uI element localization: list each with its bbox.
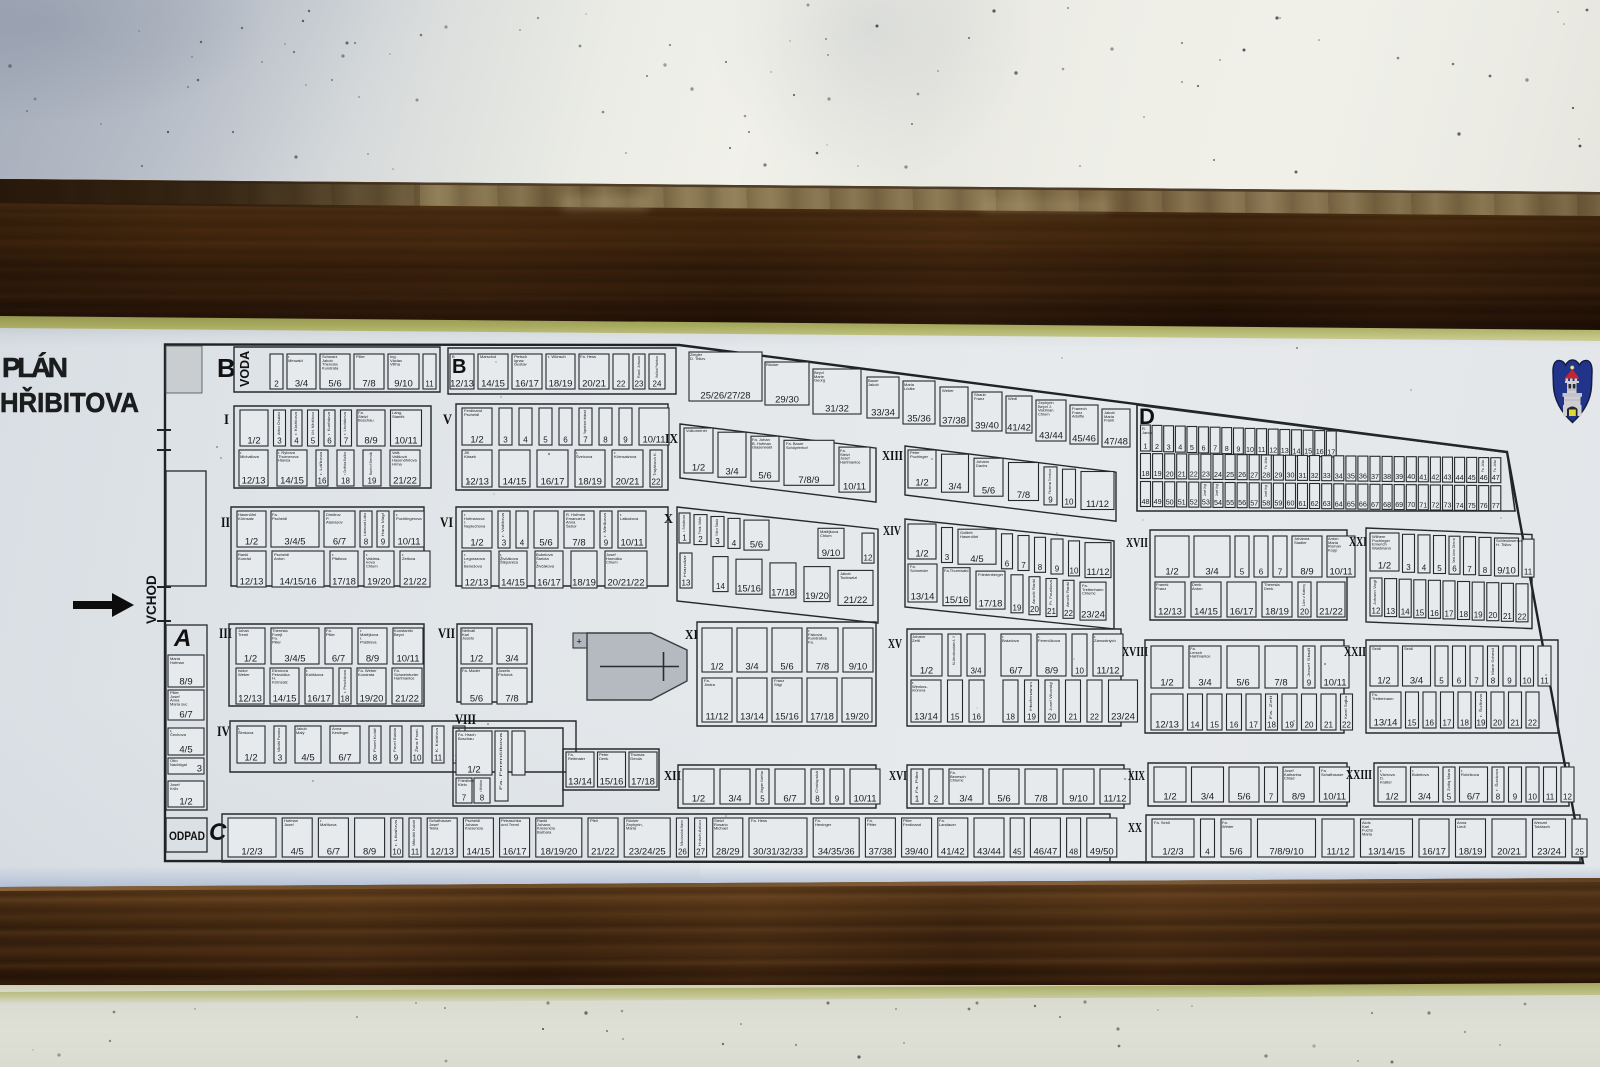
svg-text:11: 11 xyxy=(425,380,434,389)
svg-text:23: 23 xyxy=(1202,470,1210,479)
svg-text:13/14: 13/14 xyxy=(911,592,935,603)
svg-text:9: 9 xyxy=(381,538,386,547)
svg-text:35: 35 xyxy=(1347,472,1355,481)
svg-text:8: 8 xyxy=(1225,444,1229,453)
svg-text:XX: XX xyxy=(1128,821,1142,836)
svg-text:1/2: 1/2 xyxy=(1163,792,1176,803)
svg-text:10/11: 10/11 xyxy=(396,654,419,665)
svg-text:64: 64 xyxy=(1335,499,1343,508)
svg-text:24: 24 xyxy=(653,380,662,389)
svg-text:17: 17 xyxy=(1327,448,1335,457)
svg-text:56: 56 xyxy=(1238,498,1246,507)
svg-text:12/13: 12/13 xyxy=(240,577,264,588)
svg-text:r. Šustova: r. Šustova xyxy=(1494,768,1499,791)
svg-text:7: 7 xyxy=(1021,561,1026,570)
svg-text:21/22: 21/22 xyxy=(393,476,417,487)
svg-text:36: 36 xyxy=(1359,472,1367,481)
svg-text:67: 67 xyxy=(1371,500,1379,509)
svg-text:3/4/5: 3/4/5 xyxy=(284,654,305,665)
svg-text:20/21: 20/21 xyxy=(616,477,640,488)
svg-text:5: 5 xyxy=(311,437,316,446)
svg-text:5/6: 5/6 xyxy=(328,379,341,390)
svg-text:7: 7 xyxy=(344,437,349,446)
svg-text:Mikoláš Paraska: Mikoláš Paraska xyxy=(276,727,281,752)
svg-text:37/38: 37/38 xyxy=(942,416,966,427)
svg-text:21: 21 xyxy=(1324,721,1333,730)
svg-text:JohanTreml: JohanTreml xyxy=(238,628,249,637)
svg-text:10: 10 xyxy=(392,848,401,857)
svg-text:15/16: 15/16 xyxy=(775,712,799,723)
svg-text:1/2: 1/2 xyxy=(1385,792,1398,803)
svg-text:7/8/9/10: 7/8/9/10 xyxy=(1269,847,1303,858)
svg-text:52: 52 xyxy=(1190,498,1198,507)
svg-text:JohannDachs: JohannDachs xyxy=(976,459,989,468)
svg-text:18: 18 xyxy=(341,477,350,486)
svg-text:6: 6 xyxy=(1202,443,1206,452)
svg-text:75: 75 xyxy=(1468,501,1476,510)
svg-text:1: 1 xyxy=(1143,442,1147,451)
svg-text:PLÁN: PLÁN xyxy=(2,352,68,383)
svg-text:3: 3 xyxy=(945,553,950,562)
svg-text:14/15: 14/15 xyxy=(481,379,505,390)
svg-text:6/7: 6/7 xyxy=(179,710,192,721)
svg-text:1/2: 1/2 xyxy=(692,794,705,805)
svg-text:10: 10 xyxy=(1523,677,1532,686)
svg-text:17: 17 xyxy=(1445,609,1454,618)
svg-text:6: 6 xyxy=(1005,559,1010,568)
svg-text:9/10: 9/10 xyxy=(394,379,413,390)
svg-text:13/14/15: 13/14/15 xyxy=(1368,847,1405,858)
svg-text:9/10: 9/10 xyxy=(849,662,868,673)
svg-text:8/9: 8/9 xyxy=(179,677,192,688)
svg-text:11: 11 xyxy=(1540,677,1549,686)
svg-text:14/15: 14/15 xyxy=(501,578,525,589)
svg-text:23/24: 23/24 xyxy=(1537,847,1561,858)
svg-text:20: 20 xyxy=(1305,721,1314,730)
svg-text:70: 70 xyxy=(1407,500,1415,509)
svg-text:5/6: 5/6 xyxy=(982,486,995,497)
svg-text:6/7: 6/7 xyxy=(1009,666,1022,677)
svg-text:5/6: 5/6 xyxy=(780,662,793,673)
svg-text:Fa. Piller: Fa. Piller xyxy=(914,770,919,793)
svg-text:16/17: 16/17 xyxy=(537,578,561,589)
svg-text:XXI: XXI xyxy=(1349,535,1367,550)
svg-text:8/9: 8/9 xyxy=(366,654,379,665)
svg-text:59: 59 xyxy=(1274,499,1282,508)
svg-text:19: 19 xyxy=(1477,719,1486,728)
svg-text:14: 14 xyxy=(716,582,725,591)
svg-text:16: 16 xyxy=(1430,609,1439,618)
svg-text:9: 9 xyxy=(1507,677,1512,686)
svg-text:4: 4 xyxy=(1422,563,1427,572)
svg-text:10/11: 10/11 xyxy=(1323,792,1346,803)
svg-text:63: 63 xyxy=(1323,499,1331,508)
svg-text:1/2: 1/2 xyxy=(244,654,257,665)
svg-text:15/16: 15/16 xyxy=(737,584,761,595)
svg-text:XVI: XVI xyxy=(889,769,907,784)
svg-text:23/24: 23/24 xyxy=(1081,610,1105,621)
svg-text:Josef Vogl: Josef Vogl xyxy=(1214,484,1219,496)
svg-text:9: 9 xyxy=(394,754,399,763)
svg-text:20: 20 xyxy=(1030,605,1039,614)
svg-text:12/13: 12/13 xyxy=(430,847,454,858)
svg-text:Josef Stadl: Josef Stadl xyxy=(1306,648,1311,677)
svg-text:12: 12 xyxy=(1372,607,1381,616)
svg-text:Fa. Hess: Fa. Hess xyxy=(580,354,596,359)
svg-text:16/17: 16/17 xyxy=(307,694,331,705)
svg-text:48: 48 xyxy=(1069,848,1078,857)
svg-text:71: 71 xyxy=(1419,500,1427,509)
svg-text:22: 22 xyxy=(1342,721,1351,730)
svg-text:16: 16 xyxy=(318,477,327,486)
svg-text:11: 11 xyxy=(1524,568,1533,577)
svg-text:4/5: 4/5 xyxy=(179,745,192,756)
svg-text:20/21/22: 20/21/22 xyxy=(608,578,645,589)
svg-text:14: 14 xyxy=(1293,446,1301,455)
svg-text:58: 58 xyxy=(1262,499,1270,508)
svg-text:Lubasová Lidka: Lubasová Lidka xyxy=(362,512,367,536)
svg-text:5/6: 5/6 xyxy=(1237,792,1250,803)
svg-text:27: 27 xyxy=(696,848,705,857)
svg-text:1/2: 1/2 xyxy=(470,654,483,665)
svg-text:3/4: 3/4 xyxy=(1198,678,1211,689)
svg-text:21: 21 xyxy=(1503,612,1512,621)
svg-text:17/18: 17/18 xyxy=(771,587,795,598)
svg-text:6: 6 xyxy=(327,437,332,446)
svg-text:24: 24 xyxy=(1214,470,1222,479)
svg-text:XVII: XVII xyxy=(1126,536,1148,551)
svg-text:38: 38 xyxy=(1383,472,1391,481)
svg-text:16/17: 16/17 xyxy=(515,379,539,390)
svg-text:25: 25 xyxy=(1226,470,1234,479)
svg-text:10: 10 xyxy=(1528,793,1537,802)
svg-text:9: 9 xyxy=(604,539,609,548)
svg-text:B: B xyxy=(452,356,466,378)
svg-text:11/12: 11/12 xyxy=(1326,847,1349,858)
svg-text:Fr. Pouskova: Fr. Pouskova xyxy=(1048,579,1053,605)
svg-text:Fa. Seidl: Fa. Seidl xyxy=(1154,820,1170,825)
svg-text:6: 6 xyxy=(1259,568,1264,577)
svg-text:A: A xyxy=(173,625,191,652)
svg-text:39: 39 xyxy=(1395,472,1403,481)
svg-text:17/18: 17/18 xyxy=(810,712,834,723)
svg-text:Lům z Katriny: Lům z Katriny xyxy=(1301,584,1306,606)
svg-text:9: 9 xyxy=(1048,495,1053,504)
svg-text:3: 3 xyxy=(715,537,720,546)
svg-text:10/11: 10/11 xyxy=(642,435,665,446)
svg-text:18: 18 xyxy=(1459,610,1468,619)
svg-text:7/8: 7/8 xyxy=(505,694,518,705)
svg-text:11: 11 xyxy=(411,848,420,857)
svg-text:5: 5 xyxy=(1439,677,1444,686)
svg-text:11/12: 11/12 xyxy=(1086,567,1109,578)
svg-text:7: 7 xyxy=(462,794,467,803)
svg-text:Žima Frant.: Žima Frant. xyxy=(414,728,419,752)
svg-text:8/9: 8/9 xyxy=(1292,792,1305,803)
svg-text:8/9: 8/9 xyxy=(363,847,376,858)
svg-text:30: 30 xyxy=(1287,471,1295,480)
svg-text:19: 19 xyxy=(1027,713,1036,722)
svg-text:7: 7 xyxy=(583,436,588,445)
svg-text:33: 33 xyxy=(1323,471,1331,480)
svg-text:46/47: 46/47 xyxy=(1034,847,1058,858)
svg-text:Weber: Weber xyxy=(942,388,954,393)
svg-text:16/17: 16/17 xyxy=(503,847,527,858)
svg-text:11/12: 11/12 xyxy=(1103,794,1126,805)
svg-text:Chalupská: Chalupská xyxy=(814,770,819,793)
svg-text:1: 1 xyxy=(915,795,920,804)
svg-text:18: 18 xyxy=(1142,469,1150,478)
svg-text:XIV: XIV xyxy=(883,524,901,539)
svg-text:14/15: 14/15 xyxy=(280,476,304,487)
svg-text:37/38: 37/38 xyxy=(869,847,893,858)
svg-text:1/2: 1/2 xyxy=(245,537,258,548)
svg-text:8: 8 xyxy=(1483,566,1488,575)
svg-text:17: 17 xyxy=(1249,721,1258,730)
svg-text:V: V xyxy=(443,412,452,428)
svg-text:19/20: 19/20 xyxy=(360,694,384,705)
svg-text:M.Jahodorazkate A. V: M.Jahodorazkate A. V xyxy=(951,636,956,665)
svg-text:II: II xyxy=(221,515,230,531)
svg-text:XV: XV xyxy=(888,637,902,652)
svg-text:10: 10 xyxy=(413,754,422,763)
svg-text:PeterDenk: PeterDenk xyxy=(599,752,609,761)
svg-text:3/4: 3/4 xyxy=(505,654,518,665)
svg-text:18: 18 xyxy=(341,695,350,704)
svg-text:HasenöhrlKörnsatz: HasenöhrlKörnsatz xyxy=(238,512,256,521)
svg-text:33/34: 33/34 xyxy=(871,408,895,419)
svg-text:46: 46 xyxy=(1480,473,1488,482)
svg-text:22: 22 xyxy=(652,478,661,487)
svg-text:Hrách Anton: Hrách Anton xyxy=(697,820,702,846)
svg-text:10: 10 xyxy=(1065,498,1074,507)
svg-text:1/2: 1/2 xyxy=(1377,676,1390,687)
svg-text:12: 12 xyxy=(1563,793,1572,802)
svg-text:3/4: 3/4 xyxy=(725,467,738,478)
svg-text:7: 7 xyxy=(1269,793,1274,802)
svg-text:BeyvlMarieGeorg: BeyvlMarieGeorg xyxy=(814,370,825,383)
svg-text:r. Wünsch: r. Wünsch xyxy=(548,354,566,359)
svg-text:11: 11 xyxy=(1546,793,1555,802)
svg-text:18/19/20: 18/19/20 xyxy=(540,847,577,858)
svg-text:17: 17 xyxy=(1443,719,1452,728)
svg-text:40: 40 xyxy=(1407,472,1415,481)
svg-text:10/11: 10/11 xyxy=(1329,567,1352,578)
svg-text:Pfeil: Pfeil xyxy=(590,818,598,823)
svg-text:19/20: 19/20 xyxy=(805,591,829,602)
svg-text:13: 13 xyxy=(1386,607,1395,616)
svg-text:Viktor Štaďa: Viktor Štaďa xyxy=(714,518,719,536)
svg-text:15: 15 xyxy=(1210,721,1219,730)
svg-text:3/4: 3/4 xyxy=(970,667,982,676)
svg-text:Hofmann: Hofmann xyxy=(1028,682,1033,711)
svg-text:25: 25 xyxy=(1575,848,1584,857)
svg-text:73: 73 xyxy=(1444,501,1452,510)
svg-text:8/9: 8/9 xyxy=(1300,567,1313,578)
svg-text:48: 48 xyxy=(1142,497,1150,506)
svg-text:35/36: 35/36 xyxy=(907,414,931,425)
svg-text:30/31/32/33: 30/31/32/33 xyxy=(753,847,803,858)
svg-text:XXIII: XXIII xyxy=(1346,768,1372,783)
svg-text:14: 14 xyxy=(1401,608,1410,617)
svg-text:Anton Chudala: Anton Chudala xyxy=(276,411,281,435)
svg-text:r. Melkova: r. Melkova xyxy=(602,512,607,537)
svg-text:42: 42 xyxy=(1431,473,1439,482)
svg-text:Marschol: Marschol xyxy=(480,354,496,359)
svg-text:r. Šuflova: r. Šuflova xyxy=(1478,693,1483,717)
svg-text:15: 15 xyxy=(951,713,960,722)
svg-text:37: 37 xyxy=(1371,472,1379,481)
svg-text:15/16: 15/16 xyxy=(600,777,624,788)
svg-text:19: 19 xyxy=(1154,469,1162,478)
svg-text:VCHOD: VCHOD xyxy=(144,575,159,624)
svg-text:9: 9 xyxy=(1055,565,1060,574)
svg-text:4: 4 xyxy=(732,539,737,548)
svg-text:Wagner Kateřina: Wagner Kateřina xyxy=(759,770,764,793)
svg-text:+: + xyxy=(577,637,582,647)
svg-text:4: 4 xyxy=(1205,848,1210,857)
svg-text:43/44: 43/44 xyxy=(1039,431,1063,442)
svg-text:6/7: 6/7 xyxy=(338,753,351,764)
svg-text:16/17: 16/17 xyxy=(1422,847,1446,858)
svg-text:r. Líkařova: r. Líkařova xyxy=(393,819,398,846)
svg-text:11/12: 11/12 xyxy=(1096,666,1119,677)
svg-text:11/12: 11/12 xyxy=(705,712,728,723)
svg-text:2: 2 xyxy=(1155,442,1159,451)
svg-text:22: 22 xyxy=(1190,470,1198,479)
svg-text:3/4: 3/4 xyxy=(948,482,961,493)
svg-text:5: 5 xyxy=(1447,793,1452,802)
svg-text:7/8/9: 7/8/9 xyxy=(798,475,819,486)
svg-text:1/2: 1/2 xyxy=(467,765,480,776)
svg-text:Vlačilová Prokešova: Vlačilová Prokešova xyxy=(654,356,659,378)
svg-text:Marie Schmid: Marie Schmid xyxy=(1490,648,1495,675)
svg-text:50: 50 xyxy=(1166,497,1174,506)
svg-text:25/26/27/28: 25/26/27/28 xyxy=(700,391,750,402)
svg-text:XI: XI xyxy=(685,628,698,643)
svg-text:5: 5 xyxy=(760,795,765,804)
svg-text:r. Peschkova: r. Peschkova xyxy=(342,669,347,693)
svg-text:53: 53 xyxy=(1202,498,1210,507)
svg-text:74: 74 xyxy=(1456,501,1464,510)
svg-text:6/7: 6/7 xyxy=(327,847,340,858)
svg-text:3/4: 3/4 xyxy=(1201,792,1214,803)
svg-text:19/20: 19/20 xyxy=(845,712,869,723)
svg-text:7: 7 xyxy=(1213,444,1217,453)
svg-text:22: 22 xyxy=(1090,713,1099,722)
svg-text:r. Michallova: r. Michallova xyxy=(478,780,483,792)
svg-text:10/11: 10/11 xyxy=(1323,678,1346,689)
svg-text:Pavel Kolář: Pavel Kolář xyxy=(372,727,377,752)
svg-text:20: 20 xyxy=(1493,719,1502,728)
svg-text:HŘIBITOVA: HŘIBITOVA xyxy=(0,387,139,418)
svg-text:Fa. Jička: Fa. Jička xyxy=(1263,456,1268,469)
svg-text:Fa.Thurnwald: Fa.Thurnwald xyxy=(944,568,968,573)
svg-text:28/29: 28/29 xyxy=(716,847,740,858)
svg-text:3/4: 3/4 xyxy=(1205,567,1218,578)
svg-text:23/24/25: 23/24/25 xyxy=(629,847,666,858)
svg-text:19/20: 19/20 xyxy=(367,577,391,588)
svg-text:18/19: 18/19 xyxy=(549,379,573,390)
svg-text:13/14: 13/14 xyxy=(740,712,764,723)
svg-text:III: III xyxy=(219,626,232,642)
svg-text:15: 15 xyxy=(1415,608,1424,617)
svg-text:Seidl Johan Zikmund: Seidl Johan Zikmund xyxy=(1451,538,1456,563)
svg-text:ODPAD: ODPAD xyxy=(169,829,205,843)
svg-text:3: 3 xyxy=(502,539,507,548)
svg-text:18: 18 xyxy=(1460,719,1469,728)
svg-text:4: 4 xyxy=(523,436,528,445)
svg-text:66: 66 xyxy=(1359,500,1367,509)
svg-text:1/2: 1/2 xyxy=(1378,561,1391,572)
svg-text:SchwarzJakobTheresiaKundrata: SchwarzJakobTheresiaKundrata xyxy=(322,354,339,370)
svg-text:22: 22 xyxy=(1518,612,1527,621)
svg-text:16: 16 xyxy=(1230,721,1239,730)
svg-text:VODA: VODA xyxy=(238,351,252,387)
svg-text:13/14: 13/14 xyxy=(914,712,938,723)
svg-text:12/13: 12/13 xyxy=(1155,720,1179,731)
svg-text:Fa. Zetl: Fa. Zetl xyxy=(1268,696,1273,719)
svg-text:Ranč Johann: Ranč Johann xyxy=(636,356,641,378)
svg-text:61: 61 xyxy=(1299,499,1307,508)
svg-text:1/2: 1/2 xyxy=(915,478,928,489)
svg-text:76: 76 xyxy=(1480,501,1488,510)
svg-text:Frant. Máša: Frant. Máša xyxy=(697,516,702,534)
svg-text:31: 31 xyxy=(1299,471,1307,480)
svg-text:72: 72 xyxy=(1431,501,1439,510)
svg-text:9: 9 xyxy=(835,795,840,804)
svg-text:45: 45 xyxy=(1013,848,1022,857)
svg-text:Filomena Tremlova: Filomena Tremlova xyxy=(1047,468,1052,494)
svg-text:13/14: 13/14 xyxy=(568,777,592,788)
svg-text:IX: IX xyxy=(665,432,678,447)
svg-text:19: 19 xyxy=(1474,611,1483,620)
svg-text:Fa. Ferenčíkova: Fa. Ferenčíkova xyxy=(498,731,503,790)
svg-text:Arnošt Rankl: Arnošt Rankl xyxy=(1065,582,1070,607)
svg-text:Piller: Piller xyxy=(356,354,366,359)
svg-text:20: 20 xyxy=(1488,611,1497,620)
svg-text:18: 18 xyxy=(1267,721,1276,730)
svg-text:9: 9 xyxy=(1307,679,1312,688)
svg-text:8: 8 xyxy=(364,538,369,547)
svg-text:2: 2 xyxy=(274,380,279,389)
svg-text:23/24: 23/24 xyxy=(1111,712,1135,723)
svg-text:15/16: 15/16 xyxy=(945,595,969,606)
svg-text:60: 60 xyxy=(1287,499,1295,508)
svg-text:17/18: 17/18 xyxy=(979,599,1003,610)
svg-text:32: 32 xyxy=(1311,471,1319,480)
svg-text:9/10: 9/10 xyxy=(1497,566,1516,577)
svg-text:43/44: 43/44 xyxy=(977,847,1001,858)
svg-text:17/18: 17/18 xyxy=(332,577,356,588)
svg-text:5: 5 xyxy=(1240,568,1245,577)
svg-text:3/4: 3/4 xyxy=(295,379,308,390)
svg-text:41/42: 41/42 xyxy=(1007,423,1031,434)
svg-text:31/32: 31/32 xyxy=(825,404,849,415)
svg-text:14/15: 14/15 xyxy=(1194,607,1218,618)
svg-text:I: I xyxy=(224,412,229,428)
svg-text:29/30: 29/30 xyxy=(775,395,799,406)
svg-text:3/4: 3/4 xyxy=(1418,792,1431,803)
svg-text:Seidl: Seidl xyxy=(1404,646,1413,651)
svg-text:3/4: 3/4 xyxy=(745,662,758,673)
svg-text:7: 7 xyxy=(1278,568,1283,577)
svg-text:Hans Mayl: Hans Mayl xyxy=(380,513,385,536)
svg-text:14/15: 14/15 xyxy=(503,477,527,488)
svg-text:5/6: 5/6 xyxy=(758,471,771,482)
svg-text:34: 34 xyxy=(1335,471,1343,480)
svg-text:65: 65 xyxy=(1347,500,1355,509)
